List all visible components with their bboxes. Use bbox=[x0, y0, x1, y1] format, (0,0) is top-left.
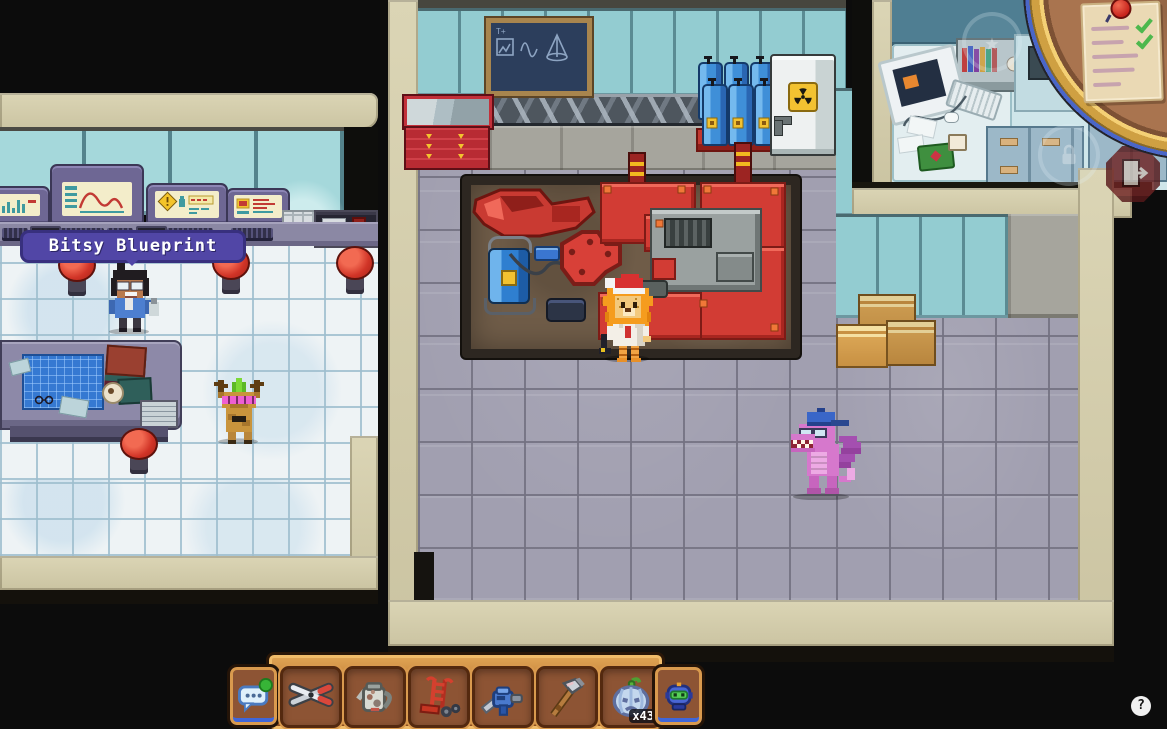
wall-step-notch bbox=[414, 552, 434, 600]
cabinet-glass-top bbox=[404, 96, 492, 128]
companion-button[interactable] bbox=[652, 664, 705, 728]
mug bbox=[102, 382, 124, 404]
cabinet-drawers bbox=[404, 126, 490, 170]
check-icon bbox=[1135, 33, 1154, 50]
red-pin-icon bbox=[1110, 0, 1132, 19]
chevron-marks-icon bbox=[406, 128, 488, 168]
blueprint-table bbox=[0, 340, 182, 430]
coffee-mug bbox=[948, 134, 967, 151]
quest-line bbox=[1092, 53, 1138, 59]
lab-floor-lower bbox=[0, 480, 352, 556]
canister-valves-icon bbox=[696, 56, 774, 150]
tooltip: Bitsy Blueprint bbox=[20, 230, 246, 263]
hotbar-slot-3[interactable] bbox=[408, 666, 470, 728]
sine-wave-chart-icon bbox=[62, 182, 132, 216]
hotbar-slot-5[interactable] bbox=[536, 666, 598, 728]
robot-companion-icon bbox=[659, 676, 699, 716]
quest-line bbox=[1091, 26, 1129, 31]
radiation-sign bbox=[788, 82, 818, 112]
chat-bubble-icon bbox=[234, 676, 274, 716]
star-icon: ★ bbox=[962, 12, 1022, 72]
hand-truck-icon bbox=[416, 674, 462, 720]
book-stack bbox=[105, 345, 147, 378]
pet-dragon[interactable] bbox=[783, 408, 863, 500]
radiation-locker bbox=[770, 54, 836, 156]
dark-machine-part bbox=[546, 298, 586, 322]
quest-line bbox=[1093, 68, 1135, 73]
workshop-right-wall bbox=[1078, 168, 1114, 646]
axe-icon bbox=[544, 674, 590, 720]
hotbar-slot-1[interactable] bbox=[280, 666, 342, 728]
glasses-icon bbox=[32, 394, 58, 406]
notebook bbox=[140, 400, 178, 428]
chalk-doodles-icon: T+ bbox=[491, 23, 577, 77]
hotbar-slot-4[interactable] bbox=[472, 666, 534, 728]
gas-canisters bbox=[696, 56, 774, 150]
svg-text:T+: T+ bbox=[496, 27, 506, 36]
help-button[interactable]: ? bbox=[1131, 696, 1151, 716]
player-character bbox=[597, 272, 659, 362]
tooltip-label: Bitsy Blueprint bbox=[49, 236, 218, 256]
lab-bottom-shadow bbox=[0, 590, 378, 604]
red-cabinet bbox=[404, 96, 492, 170]
watering-can-icon bbox=[352, 674, 398, 720]
warning-console-icon bbox=[155, 191, 219, 218]
stool bbox=[120, 428, 158, 478]
wall-console bbox=[226, 188, 290, 226]
help-label: ? bbox=[1137, 698, 1145, 713]
wall-console bbox=[50, 164, 144, 226]
quest-line bbox=[1093, 82, 1121, 87]
pet-jackalope[interactable] bbox=[210, 378, 268, 444]
cardboard-box bbox=[836, 324, 888, 368]
wall-shadow-gap bbox=[852, 0, 872, 190]
cardboard-box bbox=[886, 320, 936, 366]
pin-needle bbox=[1105, 14, 1111, 22]
arrow-right-icon bbox=[1132, 166, 1152, 180]
lab-top-wall bbox=[0, 93, 378, 129]
teal-wall-strip bbox=[836, 88, 852, 216]
quest-line bbox=[1092, 40, 1124, 45]
drawer-handle bbox=[1000, 138, 1018, 146]
workshop-bottom-wall bbox=[388, 600, 1114, 646]
radiation-trefoil-icon bbox=[793, 87, 813, 107]
hotbar-slot-2[interactable] bbox=[344, 666, 406, 728]
bar-chart-icon bbox=[0, 194, 40, 216]
heart-icon bbox=[930, 150, 941, 161]
lab-bottom-wall bbox=[0, 556, 378, 590]
office-mouse bbox=[944, 112, 959, 123]
drawer-handle bbox=[1000, 166, 1018, 174]
wall-console bbox=[0, 186, 50, 226]
locker-handle-grip bbox=[774, 120, 783, 136]
stone-wall-right bbox=[1008, 214, 1080, 318]
washer-frame bbox=[484, 298, 536, 315]
lock-icon bbox=[1038, 124, 1100, 186]
mining-drill-icon bbox=[480, 674, 526, 720]
garden-shears-icon bbox=[288, 674, 334, 720]
data-console-icon bbox=[234, 195, 282, 218]
game-viewport: T+ bbox=[0, 0, 1167, 729]
wall-console bbox=[146, 183, 228, 226]
chat-button[interactable] bbox=[227, 664, 280, 728]
chalkboard: T+ bbox=[486, 18, 592, 96]
paper bbox=[59, 396, 90, 419]
check-icon bbox=[1135, 17, 1154, 34]
stool bbox=[336, 246, 374, 298]
quest-scroll[interactable] bbox=[1080, 1, 1163, 104]
lab-right-gap bbox=[344, 127, 378, 211]
paint-roller bbox=[534, 246, 560, 261]
lock-glyph-icon bbox=[1056, 142, 1082, 168]
